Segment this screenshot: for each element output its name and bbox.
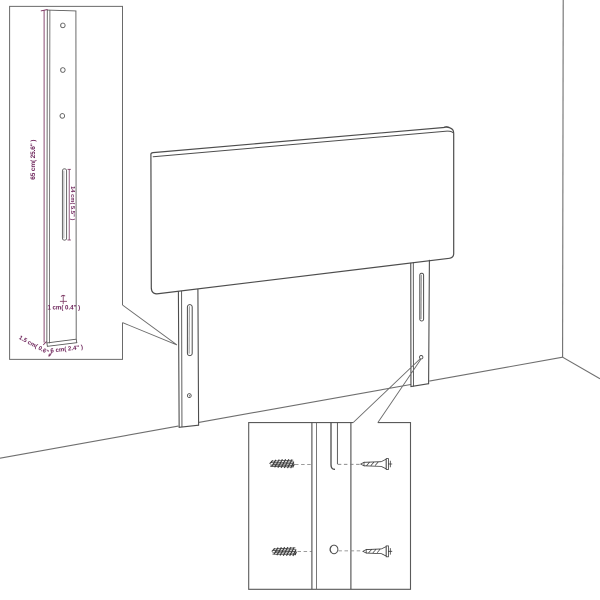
svg-text:14 cm( 5.5" ): 14 cm( 5.5" )	[69, 186, 75, 220]
svg-text:65 cm( 25.6" ): 65 cm( 25.6" )	[30, 140, 37, 180]
svg-text:1 cm( 0.4" ): 1 cm( 0.4" )	[47, 305, 80, 312]
